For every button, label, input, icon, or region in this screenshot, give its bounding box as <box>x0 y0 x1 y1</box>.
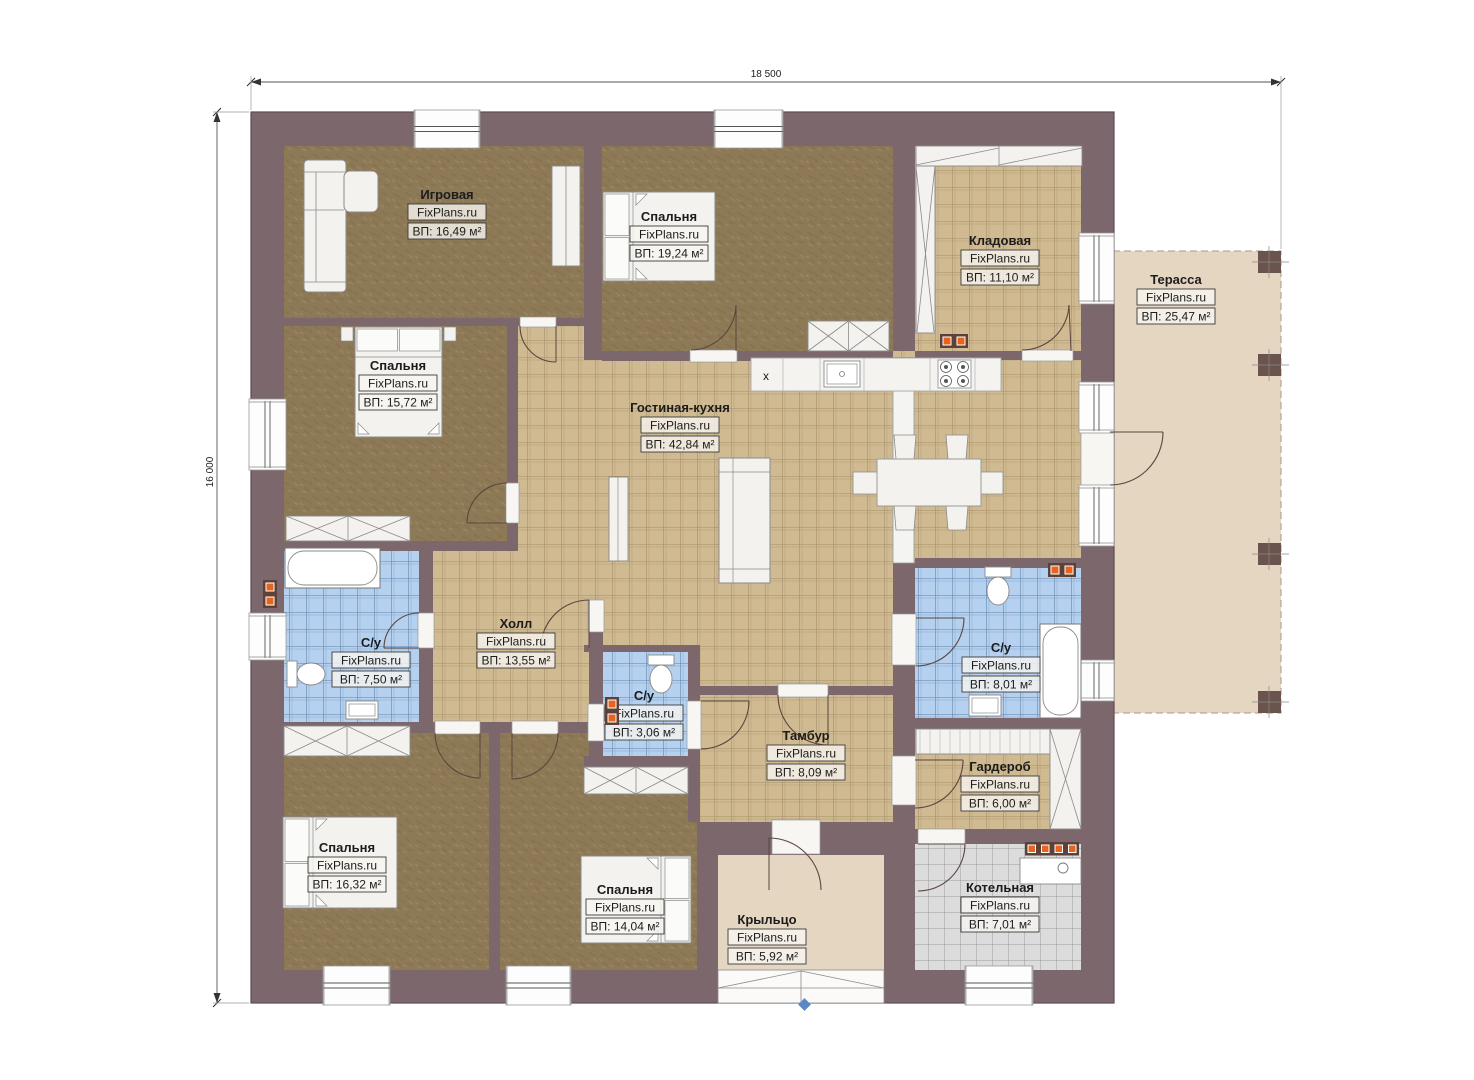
svg-text:Тамбур: Тамбур <box>782 728 829 743</box>
svg-text:Холл: Холл <box>500 616 533 631</box>
svg-text:FixPlans.ru: FixPlans.ru <box>970 778 1030 792</box>
svg-text:ВП: 19,24 м²: ВП: 19,24 м² <box>635 247 704 261</box>
svg-text:ВП: 3,06 м²: ВП: 3,06 м² <box>613 726 675 740</box>
svg-text:ВП: 14,04 м²: ВП: 14,04 м² <box>591 920 660 934</box>
svg-text:С/у: С/у <box>361 635 382 650</box>
svg-text:FixPlans.ru: FixPlans.ru <box>639 228 699 242</box>
svg-text:ВП: 8,01 м²: ВП: 8,01 м² <box>970 678 1032 692</box>
svg-text:ВП: 16,49 м²: ВП: 16,49 м² <box>413 225 482 239</box>
svg-text:Терасса: Терасса <box>1150 272 1202 287</box>
svg-text:FixPlans.ru: FixPlans.ru <box>1146 291 1206 305</box>
svg-text:Спальня: Спальня <box>597 882 653 897</box>
svg-text:18 500: 18 500 <box>751 69 782 80</box>
svg-text:FixPlans.ru: FixPlans.ru <box>341 654 401 668</box>
svg-text:С/у: С/у <box>634 688 655 703</box>
svg-text:ВП: 13,55 м²: ВП: 13,55 м² <box>482 654 551 668</box>
svg-text:Котельная: Котельная <box>966 880 1034 895</box>
svg-text:Крыльцо: Крыльцо <box>737 912 796 927</box>
svg-text:Спальня: Спальня <box>319 840 375 855</box>
svg-text:С/у: С/у <box>991 640 1012 655</box>
svg-text:ВП: 7,01 м²: ВП: 7,01 м² <box>969 918 1031 932</box>
svg-text:FixPlans.ru: FixPlans.ru <box>614 707 674 721</box>
svg-text:ВП: 11,10 м²: ВП: 11,10 м² <box>966 271 1034 285</box>
svg-text:FixPlans.ru: FixPlans.ru <box>776 747 836 761</box>
svg-text:FixPlans.ru: FixPlans.ru <box>970 899 1030 913</box>
svg-text:FixPlans.ru: FixPlans.ru <box>595 901 655 915</box>
svg-text:ВП: 5,92 м²: ВП: 5,92 м² <box>736 950 798 964</box>
svg-text:FixPlans.ru: FixPlans.ru <box>970 252 1030 266</box>
svg-text:FixPlans.ru: FixPlans.ru <box>417 206 477 220</box>
svg-text:FixPlans.ru: FixPlans.ru <box>971 659 1031 673</box>
svg-text:x: x <box>763 369 769 383</box>
svg-text:ВП: 25,47 м²: ВП: 25,47 м² <box>1142 310 1211 324</box>
svg-text:FixPlans.ru: FixPlans.ru <box>368 377 428 391</box>
svg-text:Спальня: Спальня <box>370 358 426 373</box>
svg-text:ВП: 16,32 м²: ВП: 16,32 м² <box>313 878 382 892</box>
svg-text:Кладовая: Кладовая <box>969 233 1031 248</box>
svg-text:ВП: 42,84 м²: ВП: 42,84 м² <box>646 438 715 452</box>
svg-text:Гардероб: Гардероб <box>969 759 1030 774</box>
svg-text:ВП: 8,09 м²: ВП: 8,09 м² <box>775 766 837 780</box>
svg-text:ВП: 15,72 м²: ВП: 15,72 м² <box>364 396 433 410</box>
svg-text:FixPlans.ru: FixPlans.ru <box>650 419 710 433</box>
svg-text:FixPlans.ru: FixPlans.ru <box>317 859 377 873</box>
svg-text:16 000: 16 000 <box>205 456 216 487</box>
svg-text:Гостиная-кухня: Гостиная-кухня <box>630 400 730 415</box>
svg-text:ВП: 6,00 м²: ВП: 6,00 м² <box>969 797 1031 811</box>
svg-text:FixPlans.ru: FixPlans.ru <box>486 635 546 649</box>
svg-text:FixPlans.ru: FixPlans.ru <box>737 931 797 945</box>
svg-text:Игровая: Игровая <box>420 187 473 202</box>
svg-text:ВП: 7,50 м²: ВП: 7,50 м² <box>340 673 402 687</box>
svg-text:Спальня: Спальня <box>641 209 697 224</box>
